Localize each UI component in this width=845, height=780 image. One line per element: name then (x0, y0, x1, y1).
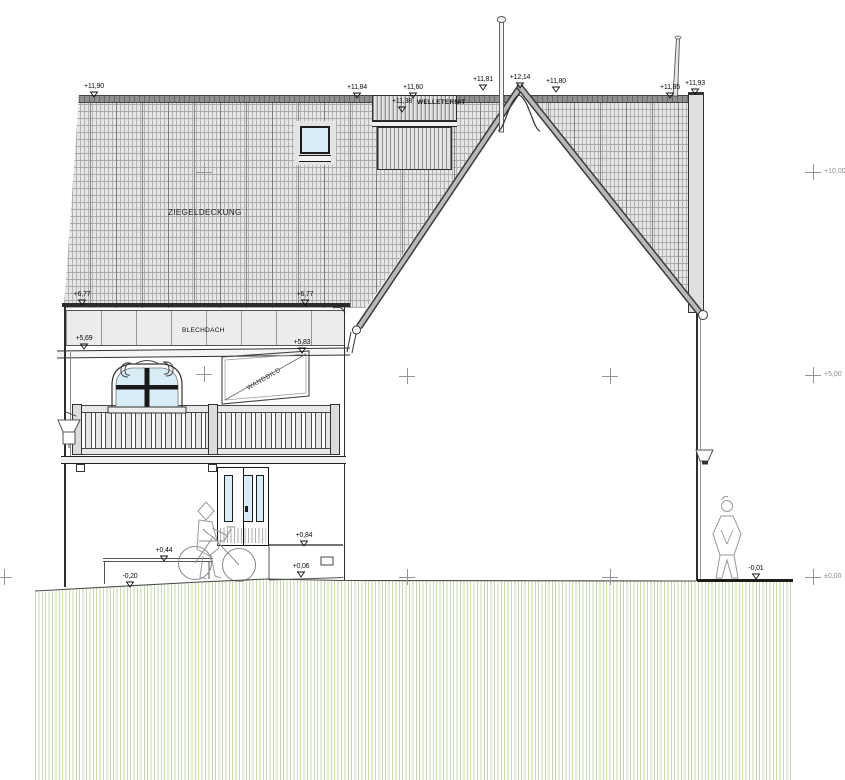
grid-reference-cross (805, 367, 821, 383)
grid-reference-cross (805, 164, 821, 180)
elevation-marker: +0,06 (286, 563, 316, 578)
elevation-marker: +11,90 (79, 83, 109, 98)
elevation-marker: +5,83 (287, 339, 317, 354)
grid-elevation-label: +5,00 (824, 371, 842, 378)
elevation-marker: -0,01 (741, 565, 771, 580)
grid-reference-cross (602, 569, 618, 585)
elevation-marker: +11,84 (342, 84, 372, 99)
elevation-marker: +12,14 (505, 74, 535, 89)
wall-lamp-right (696, 450, 713, 465)
gable-verge-right (519, 86, 700, 313)
grid-reference-cross (805, 569, 821, 585)
dormer-material-label: WELLETERNIT (417, 99, 465, 106)
skylight-glass (300, 126, 330, 154)
grid-reference-cross (196, 366, 212, 382)
wandbild-panel: WANDBILD (222, 351, 309, 404)
elevation-marker: +11,80 (541, 78, 571, 93)
elevation-marker: +0,44 (149, 547, 179, 562)
gutter-right (699, 311, 708, 320)
elevation-marker: -0,20 (115, 573, 145, 588)
grid-reference-cross (0, 569, 12, 585)
wall-lamp-left (58, 412, 80, 448)
skylight-flashing (299, 155, 331, 162)
grid-reference-cross (399, 569, 415, 585)
elevation-marker: +5,69 (69, 335, 99, 350)
grid-reference-cross (602, 368, 618, 384)
elevation-drawing-canvas: ZIEGELDECKUNG BLECHDACH WELLETERNIT (0, 0, 845, 780)
arched-window (108, 361, 186, 414)
elevation-marker: +6,77 (67, 291, 97, 306)
elevation-marker: +6,77 (290, 291, 320, 306)
elevation-marker: +11,93 (680, 80, 710, 95)
grid-elevation-label: ±0,00 (824, 573, 841, 580)
skylight (294, 121, 336, 165)
elevation-marker: +0,84 (289, 532, 319, 547)
dormer-siding (377, 127, 452, 170)
wandbild-label: WANDBILD (246, 367, 282, 392)
elevation-marker: +11,81 (468, 76, 498, 91)
grid-reference-cross (196, 164, 212, 180)
gutter-downspout-left (333, 307, 361, 353)
bicycle (179, 527, 256, 582)
grid-elevation-label: +10,00 (824, 168, 845, 175)
person-right (713, 496, 741, 578)
elevation-marker: +11,38 (387, 98, 417, 113)
elevation-marker: +11,60 (398, 84, 428, 99)
grid-reference-cross (399, 368, 415, 384)
